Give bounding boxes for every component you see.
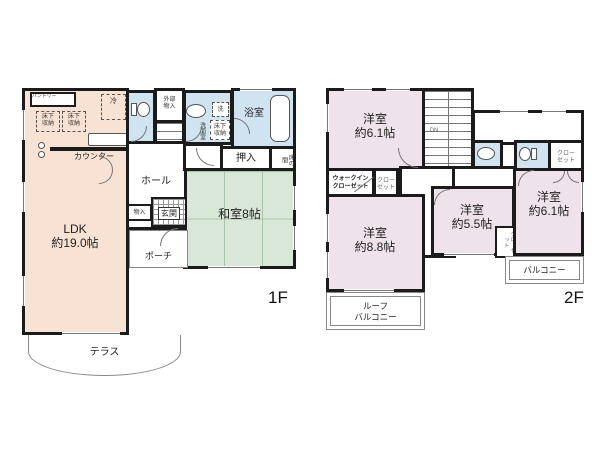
bedroom-sw-label: 洋室 約8.8帖 (338, 226, 412, 255)
fridge-box: 冷 (101, 94, 126, 120)
bedroom-se-label: 洋室 約6.1帖 (522, 190, 576, 219)
pantry-box: パントリー (30, 92, 76, 107)
tokonoma-label: 床の間 (280, 151, 293, 168)
window (240, 88, 272, 91)
toilet-icon (137, 102, 150, 117)
window (344, 289, 394, 292)
floor-label-2f: 2F (564, 288, 584, 308)
window (293, 186, 296, 210)
porch: ポーチ (129, 230, 188, 268)
bathtub-icon (270, 95, 290, 142)
kitchen-counter (50, 147, 138, 151)
hall-label: ホール (131, 176, 181, 188)
window (62, 332, 120, 335)
window (344, 88, 372, 91)
window (444, 253, 494, 256)
genkan: 玄関 (151, 197, 187, 227)
window (386, 88, 410, 91)
window (208, 266, 260, 269)
fridge-label: 冷 (102, 98, 125, 106)
walk-in-closet: ウォークイン クローゼット (326, 168, 375, 197)
underfloor-storage-box: 床下 収納 (62, 111, 86, 132)
window (500, 110, 528, 113)
counter-island (88, 133, 128, 146)
bedroom-nw-label: 洋室 約6.1帖 (338, 112, 412, 141)
closet-2f: クロー ゼット (548, 140, 584, 171)
toilet-icon (531, 148, 537, 160)
porch-label: ポーチ (130, 251, 187, 262)
floorplan: LDK 約19.0帖 パントリー 冷 床下 収納 床下 収納 カウンター 外部 … (0, 0, 600, 450)
window (22, 276, 25, 306)
pantry-label: パントリー (32, 94, 66, 99)
window (326, 252, 329, 278)
exterior-storage: 外部 物入 (154, 88, 185, 123)
roof-balcony: ルーフ バルコニー (326, 292, 425, 330)
counter-label: カウンター (52, 152, 136, 162)
monoire-label: 物入 (129, 210, 150, 217)
washer-label: 洗 (213, 107, 228, 114)
washitsu-label: 和室8帖 (193, 207, 286, 221)
oshiire-label: 押入 (223, 153, 269, 165)
stairs-divider (448, 91, 449, 170)
terrace: テラス (28, 335, 181, 376)
washer-box: 洗 (212, 102, 229, 117)
sink-icon (186, 104, 206, 118)
closet-small: クロー ゼット (373, 168, 399, 197)
floor-label-1f: 1F (268, 288, 288, 308)
stove-burners-icon (38, 151, 45, 158)
window (22, 110, 25, 140)
stairs-down-label: DN (424, 128, 444, 135)
balcony: バルコニー (505, 256, 584, 284)
terrace-label: テラス (29, 347, 180, 359)
storage-monoire: 物入 (127, 204, 152, 221)
window (326, 214, 329, 242)
window (22, 182, 25, 212)
genkan-label: 玄関 (158, 207, 180, 220)
balcony-label: バルコニー (506, 265, 583, 275)
sink-icon (477, 147, 495, 160)
room-ldk-label: LDK 約19.0帖 (30, 222, 120, 251)
toilet-icon (519, 147, 531, 161)
window (542, 110, 566, 113)
window (581, 182, 584, 212)
underfloor-storage-box: 床下 収納 (210, 120, 230, 140)
window (293, 226, 296, 250)
closet-vertical: クローゼット (495, 226, 515, 258)
window (326, 104, 329, 132)
underfloor-storage-box: 床下 収納 (36, 111, 60, 132)
stove-burners-icon (38, 142, 45, 149)
bathroom-label: 浴室 (236, 108, 272, 120)
